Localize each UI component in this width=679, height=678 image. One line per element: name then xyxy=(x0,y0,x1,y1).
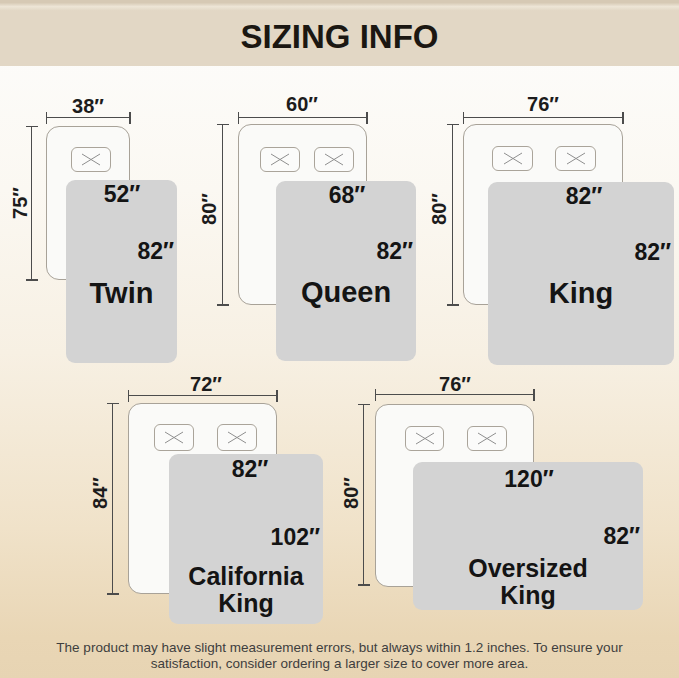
pillow-x-icon xyxy=(501,151,525,166)
king-length-dimension-line xyxy=(452,124,453,305)
twin-pillow xyxy=(71,147,111,172)
twin-length-label: 75″ xyxy=(9,187,32,219)
queen-blanket: 68″ 82″ Queen xyxy=(276,181,416,361)
california-king-length-label: 84″ xyxy=(89,477,112,509)
california-king-blanket: 82″ 102″ California King xyxy=(169,454,323,624)
queen-length-dimension-line xyxy=(222,124,223,305)
king-pillow-right xyxy=(555,146,596,171)
oversized-king-name-label: Oversized King xyxy=(443,555,613,609)
twin-blanket-width-label: 52″ xyxy=(104,181,141,208)
page-title: SIZING INFO xyxy=(241,18,439,56)
california-king-name-label: California King xyxy=(161,563,331,617)
pillow-x-icon xyxy=(322,152,346,167)
oversized-king-blanket: 120″ 82″ Oversized King xyxy=(413,462,643,610)
disclaimer-line-1: The product may have slight measurement … xyxy=(0,640,679,656)
twin-blanket: 52″ 82″ Twin xyxy=(66,180,177,363)
header-band: SIZING INFO xyxy=(0,0,679,66)
queen-blanket-length-label: 82″ xyxy=(376,238,413,265)
pillow-x-icon xyxy=(413,431,437,446)
queen-blanket-width-label: 68″ xyxy=(329,182,366,209)
pillow-x-icon xyxy=(564,151,588,166)
queen-width-dimension-line xyxy=(238,117,367,118)
california-king-pillow-right xyxy=(217,424,257,451)
queen-width-label: 60″ xyxy=(286,93,318,116)
disclaimer-line-2: satisfaction, consider ordering a larger… xyxy=(0,656,679,672)
king-blanket-width-label: 82″ xyxy=(566,183,603,210)
king-name-label: King xyxy=(549,277,613,310)
oversized-king-blanket-length-label: 82″ xyxy=(603,523,640,550)
disclaimer: The product may have slight measurement … xyxy=(0,640,679,672)
pillow-x-icon xyxy=(475,431,499,446)
california-king-width-dimension-line xyxy=(128,395,277,396)
oversized-king-blanket-width-label: 120″ xyxy=(504,466,553,493)
oversized-king-length-dimension-line xyxy=(363,404,364,585)
california-king-blanket-width-label: 82″ xyxy=(232,456,269,483)
king-blanket-length-label: 82″ xyxy=(634,239,671,266)
oversized-king-pillow-right xyxy=(467,426,507,451)
oversized-king-width-label: 76″ xyxy=(439,373,471,396)
king-length-label: 80″ xyxy=(428,193,451,225)
pillow-x-icon xyxy=(79,152,103,167)
twin-width-dimension-line xyxy=(46,117,130,118)
pillow-x-icon xyxy=(162,430,186,445)
twin-blanket-length-label: 82″ xyxy=(137,238,174,265)
queen-name-label: Queen xyxy=(301,276,391,309)
oversized-king-length-label: 80″ xyxy=(340,477,363,509)
california-king-blanket-length-label: 102″ xyxy=(271,524,320,551)
queen-pillow-left xyxy=(260,147,300,172)
california-king-width-label: 72″ xyxy=(190,373,222,396)
queen-length-label: 80″ xyxy=(198,193,221,225)
oversized-king-pillow-left xyxy=(405,426,444,451)
california-king-length-dimension-line xyxy=(112,403,113,594)
sizing-info-graphic: SIZING INFO 38″ 75″ 52″ 82″ Twin 60″ 80″ xyxy=(0,0,679,678)
oversized-king-width-dimension-line xyxy=(375,394,534,395)
king-pillow-left xyxy=(492,146,533,171)
pillow-x-icon xyxy=(268,152,292,167)
twin-length-dimension-line xyxy=(31,126,32,280)
twin-name-label: Twin xyxy=(90,277,154,310)
california-king-pillow-left xyxy=(154,424,194,451)
king-blanket: 82″ 82″ King xyxy=(488,182,674,365)
king-width-dimension-line xyxy=(463,117,623,118)
pillow-x-icon xyxy=(225,430,249,445)
queen-pillow-right xyxy=(314,147,354,172)
twin-width-label: 38″ xyxy=(72,95,104,118)
king-width-label: 76″ xyxy=(527,93,559,116)
